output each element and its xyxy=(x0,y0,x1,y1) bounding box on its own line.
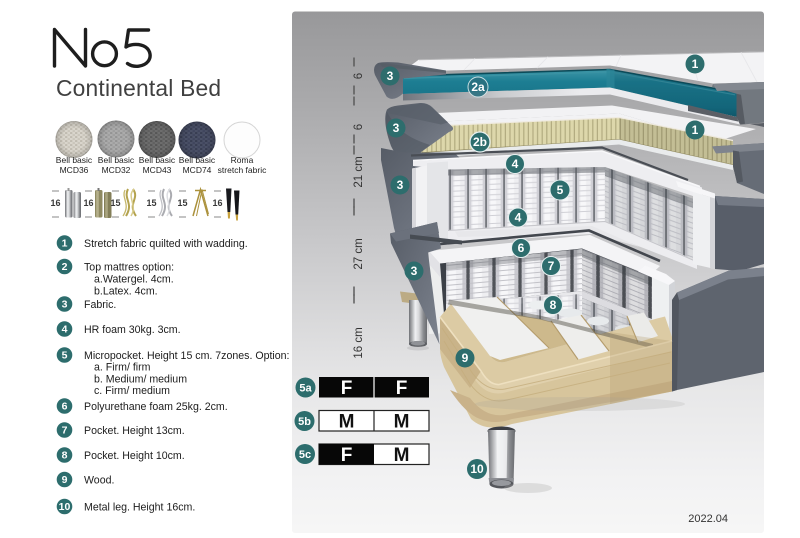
svg-text:Continental Bed: Continental Bed xyxy=(56,75,221,101)
svg-text:MCD32: MCD32 xyxy=(102,165,131,175)
svg-text:Fabric.: Fabric. xyxy=(84,299,116,311)
svg-text:M: M xyxy=(394,412,410,433)
svg-text:3: 3 xyxy=(62,299,68,311)
svg-text:9: 9 xyxy=(462,351,469,365)
svg-text:4: 4 xyxy=(515,211,522,225)
svg-text:b.Latex. 4cm.: b.Latex. 4cm. xyxy=(94,286,158,298)
svg-text:5c: 5c xyxy=(299,449,311,461)
svg-text:Metal leg. Height 16cm.: Metal leg. Height 16cm. xyxy=(84,501,195,513)
svg-text:16: 16 xyxy=(83,198,93,208)
svg-text:Bell basic: Bell basic xyxy=(179,155,216,165)
svg-text:M: M xyxy=(394,445,410,466)
svg-text:5b: 5b xyxy=(298,416,311,428)
svg-text:Micropocket. Height 15 cm. 7zo: Micropocket. Height 15 cm. 7zones. Optio… xyxy=(84,350,290,362)
svg-text:Bell basic: Bell basic xyxy=(56,155,93,165)
svg-text:4: 4 xyxy=(512,157,519,171)
svg-text:6: 6 xyxy=(353,73,365,79)
svg-text:3: 3 xyxy=(393,121,400,135)
svg-text:15: 15 xyxy=(110,198,120,208)
svg-text:Bell basic: Bell basic xyxy=(139,155,176,165)
svg-text:2a: 2a xyxy=(471,80,485,94)
svg-text:8: 8 xyxy=(62,450,68,462)
svg-text:5: 5 xyxy=(557,183,564,197)
svg-text:Wood.: Wood. xyxy=(84,474,114,486)
svg-text:a.Watergel. 4cm.: a.Watergel. 4cm. xyxy=(94,274,174,286)
svg-text:5: 5 xyxy=(62,350,68,362)
svg-text:9: 9 xyxy=(62,474,68,486)
svg-text:16: 16 xyxy=(212,198,222,208)
svg-text:10: 10 xyxy=(470,462,484,476)
svg-text:4: 4 xyxy=(62,324,68,336)
svg-text:MCD74: MCD74 xyxy=(183,165,212,175)
svg-text:1: 1 xyxy=(692,123,699,137)
svg-text:1: 1 xyxy=(692,57,699,71)
svg-text:stretch fabric: stretch fabric xyxy=(218,165,267,175)
svg-text:7: 7 xyxy=(62,425,68,437)
svg-text:a. Firm/ firm: a. Firm/ firm xyxy=(94,361,151,373)
svg-text:16: 16 xyxy=(50,198,60,208)
svg-text:b. Medium/ medium: b. Medium/ medium xyxy=(94,373,187,385)
svg-text:2b: 2b xyxy=(473,135,487,149)
svg-text:8: 8 xyxy=(550,298,557,312)
svg-text:M: M xyxy=(339,412,355,433)
svg-text:F: F xyxy=(341,378,353,399)
svg-text:16 cm: 16 cm xyxy=(353,327,365,358)
svg-text:5a: 5a xyxy=(299,383,312,395)
svg-text:15: 15 xyxy=(146,198,156,208)
svg-text:6: 6 xyxy=(353,124,365,130)
svg-text:Top mattres option:: Top mattres option: xyxy=(84,261,174,273)
svg-text:Polyurethane foam 25kg. 2cm.: Polyurethane foam 25kg. 2cm. xyxy=(84,401,228,413)
svg-text:6: 6 xyxy=(518,241,525,255)
svg-text:2: 2 xyxy=(62,261,68,273)
svg-text:Roma: Roma xyxy=(231,155,254,165)
svg-text:HR foam 30kg. 3cm.: HR foam 30kg. 3cm. xyxy=(84,324,181,336)
svg-text:Bell basic: Bell basic xyxy=(98,155,135,165)
svg-text:3: 3 xyxy=(387,69,394,83)
svg-text:15: 15 xyxy=(177,198,187,208)
svg-text:F: F xyxy=(341,445,353,466)
svg-text:3: 3 xyxy=(411,264,418,278)
svg-text:F: F xyxy=(396,378,408,399)
svg-text:10: 10 xyxy=(59,501,71,513)
svg-text:Pocket. Height 10cm.: Pocket. Height 10cm. xyxy=(84,450,185,462)
svg-text:MCD43: MCD43 xyxy=(143,165,172,175)
svg-text:1: 1 xyxy=(62,238,68,250)
svg-text:2022.04: 2022.04 xyxy=(688,513,728,525)
svg-text:Stretch fabric quilted with wa: Stretch fabric quilted with wadding. xyxy=(84,238,248,250)
svg-text:MCD36: MCD36 xyxy=(60,165,89,175)
svg-text:21 cm: 21 cm xyxy=(353,156,365,187)
svg-text:7: 7 xyxy=(548,259,555,273)
svg-text:3: 3 xyxy=(397,178,404,192)
svg-text:Pocket. Height 13cm.: Pocket. Height 13cm. xyxy=(84,425,185,437)
svg-text:27 cm: 27 cm xyxy=(353,238,365,269)
svg-text:6: 6 xyxy=(62,401,68,413)
svg-text:c. Firm/ medium: c. Firm/ medium xyxy=(94,385,170,397)
